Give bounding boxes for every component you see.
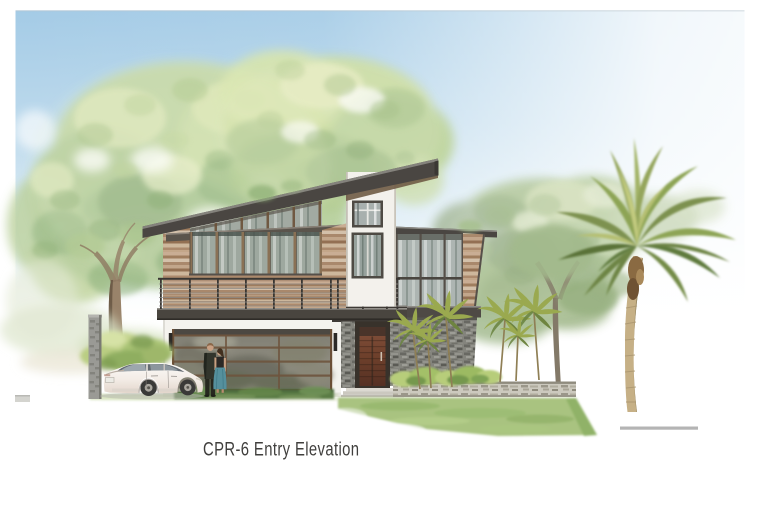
svg-text:CPR-6 Entry Elevation: CPR-6 Entry Elevation bbox=[203, 437, 359, 460]
